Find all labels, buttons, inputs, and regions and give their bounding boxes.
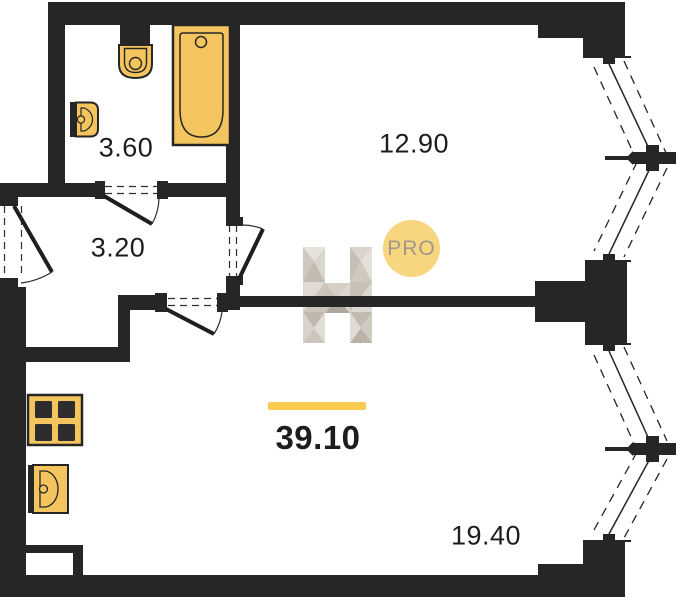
living-room-door: [166, 299, 222, 335]
walls: [0, 2, 627, 597]
area-label-bathroom: 3.60: [99, 133, 154, 164]
bathroom-sink-icon: [70, 102, 98, 137]
h-logo-watermark-icon: [303, 247, 372, 343]
pro-badge: PRO: [383, 220, 440, 277]
room-door: [230, 225, 264, 281]
floorplan-drawing: [0, 0, 676, 600]
bay-window-bottom: [583, 343, 676, 542]
stove-icon: [28, 395, 82, 445]
bathroom-door: [104, 187, 159, 225]
pro-badge-label: PRO: [387, 237, 436, 261]
floorplan: 3.60 3.20 12.90 19.40 39.10 PRO: [0, 0, 676, 600]
total-area-label: 39.10: [275, 419, 360, 457]
entrance-door: [5, 206, 53, 283]
area-label-room: 12.90: [379, 129, 449, 160]
area-label-living-kitchen: 19.40: [451, 521, 521, 552]
kitchen-sink-icon: [28, 465, 68, 513]
toilet-icon: [119, 25, 152, 78]
total-area-accent-line: [268, 402, 366, 410]
bathtub-icon: [173, 25, 230, 145]
area-label-hallway: 3.20: [91, 233, 146, 264]
bay-window-top: [583, 56, 676, 262]
